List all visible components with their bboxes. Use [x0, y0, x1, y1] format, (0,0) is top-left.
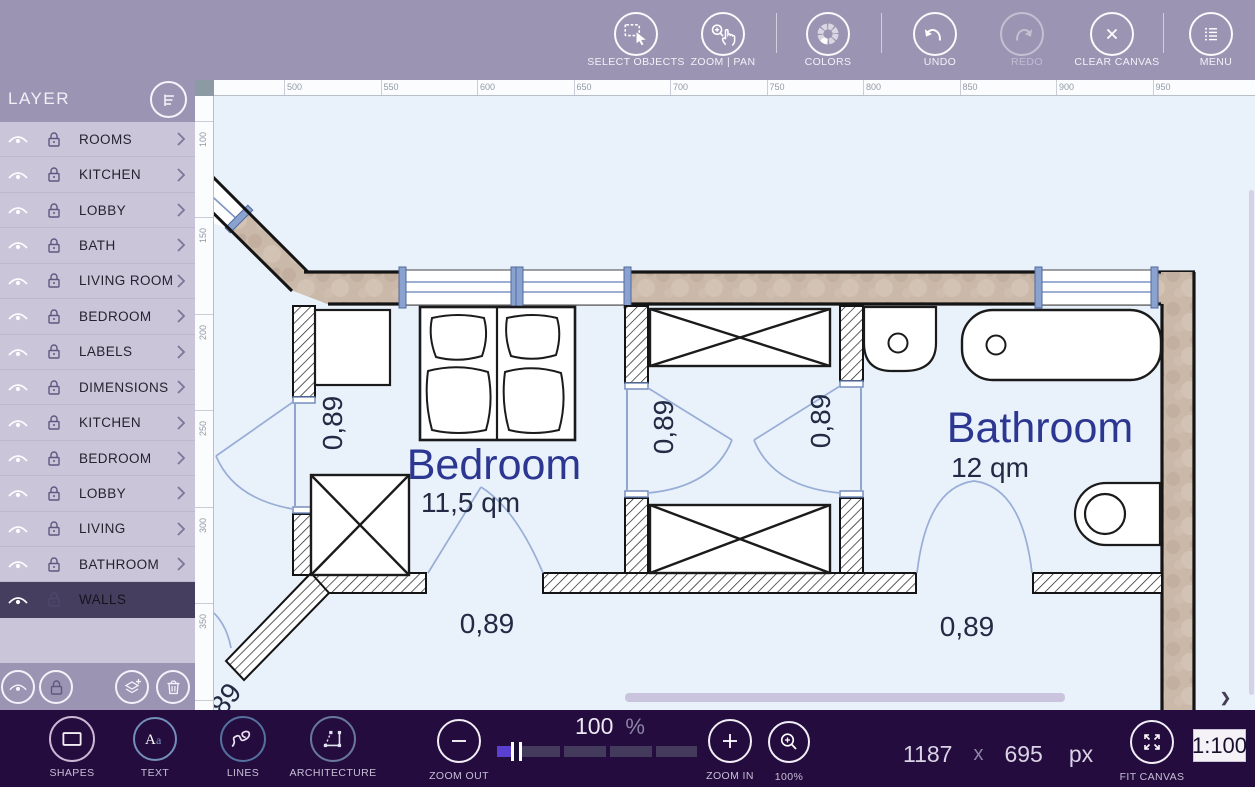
layer-panel-header: LAYER [0, 80, 195, 122]
chevron-right-icon [176, 237, 186, 253]
ruler-tick-label: 300 [198, 503, 208, 533]
undo-icon [921, 20, 949, 48]
layer-row-lobby[interactable]: LOBBY [0, 476, 195, 511]
ruler-tick-label: 650 [577, 82, 592, 92]
architecture-label: ARCHITECTURE [268, 767, 398, 779]
ruler-tick-label: 750 [770, 82, 785, 92]
zoom-reset-label: 100% [724, 771, 854, 783]
ruler-tick-label: 150 [198, 213, 208, 243]
drawing-canvas[interactable]: Bedroom 11,5 qm Bathroom 12 qm 0,89 0,89… [214, 96, 1255, 710]
vertical-ruler: 100150200250300350400 [195, 96, 214, 710]
layer-row-labels[interactable]: LABELS [0, 335, 195, 370]
add-layer-button[interactable] [115, 670, 149, 704]
layer-row-label: KITCHEN [79, 167, 141, 182]
layer-row-label: DIMENSIONS [79, 380, 169, 395]
ruler-tick-label: 700 [673, 82, 688, 92]
ruler-tick-label: 950 [1156, 82, 1171, 92]
redo-icon [1008, 20, 1036, 48]
horizontal-ruler: 500550600650700750800850900950 [214, 80, 1255, 96]
zoom-out-label: ZOOM OUT [394, 770, 524, 782]
ruler-tick [863, 80, 864, 96]
cabinet [315, 310, 390, 385]
layer-row-label: BEDROOM [79, 451, 152, 466]
close-icon [1099, 21, 1125, 47]
bathtub [962, 310, 1161, 380]
top-toolbar: SELECT OBJECTS ZOOM | PAN COLORS [0, 0, 1255, 80]
vertical-scrollbar-thumb[interactable] [1249, 190, 1254, 695]
ruler-tick-label: 550 [384, 82, 399, 92]
shapes-button[interactable] [49, 716, 95, 762]
chevron-right-icon [176, 415, 186, 431]
ruler-tick [670, 80, 671, 96]
eye-icon [6, 487, 30, 499]
layer-row-label: ROOMS [79, 132, 132, 147]
lock-icon [46, 556, 62, 573]
layer-row-label: BATH [79, 238, 116, 253]
layer-row-label: LOBBY [79, 203, 126, 218]
chevron-right-icon [176, 202, 186, 218]
chevron-right-icon [176, 450, 186, 466]
ruler-tick-label: 800 [866, 82, 881, 92]
menu-label: MENU [1151, 56, 1255, 68]
ruler-tick [477, 80, 478, 96]
eye-icon [6, 346, 30, 358]
chevron-right-icon [176, 556, 186, 572]
toolbar-separator [1163, 13, 1164, 53]
architecture-button[interactable] [310, 716, 356, 762]
bedroom-area-label: 11,5 qm [421, 487, 520, 518]
layer-row-living-room[interactable]: LIVING ROOM [0, 264, 195, 299]
eye-icon [6, 452, 30, 464]
lock-icon [46, 237, 62, 254]
dimension-label: 0,89 [805, 394, 836, 449]
double-bed [420, 307, 575, 440]
chevron-right-icon [176, 344, 186, 360]
lock-icon [46, 591, 62, 608]
eye-icon [6, 417, 30, 429]
lock-icon [46, 485, 62, 502]
chevron-right-icon [176, 379, 186, 395]
layer-row-label: BATHROOM [79, 557, 159, 572]
layer-flyout-button[interactable] [150, 81, 187, 118]
zoom-out-button[interactable] [437, 719, 481, 763]
lines-button[interactable] [220, 716, 266, 762]
select-objects-icon [622, 20, 650, 48]
layer-row-label: LIVING [79, 521, 126, 536]
eye-icon [6, 239, 30, 251]
ruler-tick [1056, 80, 1057, 96]
ruler-tick [381, 80, 382, 96]
window [399, 267, 518, 308]
times-sign: x [973, 741, 983, 768]
ruler-tick-label: 100 [198, 117, 208, 147]
eye-icon [6, 275, 30, 287]
toggle-visibility-button[interactable] [1, 670, 35, 704]
text-icon: A a [140, 726, 170, 752]
canvas-height-value[interactable]: 695 [1004, 741, 1042, 768]
bathroom-label: Bathroom [947, 404, 1133, 452]
toolbar-separator [776, 13, 777, 53]
chevron-right-icon [176, 485, 186, 501]
ruler-tick-label: 350 [198, 599, 208, 629]
wardrobe [311, 475, 409, 575]
zoom-pan-icon [709, 20, 737, 48]
ruler-tick-label: 900 [1059, 82, 1074, 92]
layer-row-living[interactable]: LIVING [0, 512, 195, 547]
layer-row-label: LABELS [79, 344, 132, 359]
chevron-right-icon [176, 521, 186, 537]
clear-canvas-button[interactable] [1090, 12, 1134, 56]
dimension-label: 0,89 [317, 396, 348, 451]
layer-row-bathroom[interactable]: BATHROOM [0, 547, 195, 582]
lock-icon [46, 308, 62, 325]
window [516, 267, 631, 308]
eye-icon [6, 133, 30, 145]
menu-list-icon [1198, 21, 1224, 47]
ruler-tick [1153, 80, 1154, 96]
eye-icon [6, 310, 30, 322]
ruler-tick [767, 80, 768, 96]
eye-icon [6, 558, 30, 570]
wardrobe [650, 309, 830, 366]
layer-row-bedroom[interactable]: BEDROOM [0, 441, 195, 476]
zoom-slider-thumb[interactable] [511, 742, 522, 761]
text-button[interactable]: A a [133, 717, 177, 761]
layer-panel-title: LAYER [8, 89, 70, 109]
lock-icon [46, 343, 62, 360]
ruler-tick [574, 80, 575, 96]
colors-label: COLORS [763, 56, 893, 68]
wall-tool-icon [319, 725, 347, 753]
horizontal-scrollbar-thumb[interactable] [625, 693, 1065, 702]
ruler-tick-label: 250 [198, 406, 208, 436]
zoom-pan-button[interactable] [701, 12, 745, 56]
layer-row-label: KITCHEN [79, 415, 141, 430]
rectangle-shape-icon [58, 725, 86, 753]
color-wheel-icon [814, 20, 842, 48]
zoom-reset-button[interactable] [768, 721, 810, 763]
eye-icon [6, 204, 30, 216]
toolbar-separator [881, 13, 882, 53]
bedroom-label: Bedroom [407, 441, 581, 489]
chevron-right-icon [176, 167, 186, 183]
canvas-size-unit: px [1069, 741, 1093, 768]
fit-canvas-button[interactable] [1130, 720, 1174, 764]
scale-selector[interactable]: 1:100 [1193, 729, 1246, 762]
canvas-size-display: 1187 x 695 px [903, 741, 1093, 768]
window [1035, 267, 1158, 308]
fit-canvas-icon [1139, 729, 1165, 755]
delete-layer-button[interactable] [156, 670, 190, 704]
menu-button[interactable] [1189, 12, 1233, 56]
layer-list: ROOMS KITCHEN [0, 122, 195, 663]
ruler-tick [960, 80, 961, 96]
ruler-tick-label: 200 [198, 310, 208, 340]
ruler-tick-label: 500 [287, 82, 302, 92]
eye-icon [8, 680, 28, 694]
scroll-right-arrow[interactable]: ❯ [1220, 690, 1231, 706]
scale-value: 1:100 [1192, 733, 1247, 759]
layer-row-label: LIVING ROOM [79, 273, 173, 288]
add-layer-icon [122, 677, 143, 698]
layer-row-label: BEDROOM [79, 309, 152, 324]
lock-icon [48, 678, 65, 697]
ruler-tick-label: 400 [198, 696, 208, 711]
layer-panel: LAYER [0, 80, 195, 710]
layer-row-walls[interactable]: WALLS [0, 582, 195, 617]
layer-row-bedroom[interactable]: BEDROOM [0, 299, 195, 334]
fit-canvas-label: FIT CANVAS [1087, 771, 1217, 783]
colors-button[interactable] [806, 12, 850, 56]
svg-text:A: A [145, 732, 156, 748]
lock-icon [46, 379, 62, 396]
lock-icon [46, 166, 62, 183]
ruler-tick-label: 850 [963, 82, 978, 92]
redo-button[interactable] [1000, 12, 1044, 56]
select-objects-button[interactable] [614, 12, 658, 56]
layer-row-dimensions[interactable]: DIMENSIONS [0, 370, 195, 405]
chevron-right-icon [176, 131, 186, 147]
toggle-lock-button[interactable] [39, 670, 73, 704]
wardrobe [650, 505, 830, 573]
ruler-tick [284, 80, 285, 96]
trash-icon [164, 677, 183, 697]
lock-icon [46, 414, 62, 431]
zoom-in-button[interactable] [708, 719, 752, 763]
curve-line-icon [229, 725, 257, 753]
plus-icon [717, 728, 743, 754]
undo-button[interactable] [913, 12, 957, 56]
layer-row-label: WALLS [79, 592, 126, 607]
layer-row-rooms[interactable]: ROOMS [0, 122, 195, 157]
layer-row-kitchen[interactable]: KITCHEN [0, 157, 195, 192]
dimension-label: 0,89 [214, 677, 248, 710]
layer-row-bath[interactable]: BATH [0, 228, 195, 263]
floorplan-drawing: Bedroom 11,5 qm Bathroom 12 qm 0,89 0,89… [214, 96, 1255, 710]
bathroom-area-label: 12 qm [951, 452, 1029, 483]
minus-icon [446, 728, 472, 754]
canvas-width-value[interactable]: 1187 [903, 741, 952, 768]
svg-text:a: a [156, 733, 162, 747]
layer-row-kitchen[interactable]: KITCHEN [0, 405, 195, 440]
floorplan-app: SELECT OBJECTS ZOOM | PAN COLORS [0, 0, 1255, 787]
sink [864, 307, 936, 371]
magnifier-plus-icon [776, 729, 802, 755]
dimension-label: 0,89 [940, 611, 995, 642]
eye-icon [6, 381, 30, 393]
lock-icon [46, 450, 62, 467]
layer-panel-footer [0, 663, 195, 710]
ruler-tick-label: 600 [480, 82, 495, 92]
toilet [1075, 483, 1160, 545]
layer-row-lobby[interactable]: LOBBY [0, 193, 195, 228]
zoom-percentage: 100% [575, 713, 645, 740]
layer-row-label: LOBBY [79, 486, 126, 501]
lock-icon [46, 272, 62, 289]
layer-list-icon [158, 89, 180, 111]
eye-icon [6, 169, 30, 181]
eye-icon [6, 594, 30, 606]
chevron-right-icon [176, 273, 186, 289]
chevron-right-icon [176, 308, 186, 324]
lock-icon [46, 202, 62, 219]
lock-icon [46, 520, 62, 537]
eye-icon [6, 523, 30, 535]
lock-icon [46, 131, 62, 148]
bottom-toolbar: SHAPES A a TEXT LINES ARCHITEC [0, 710, 1255, 787]
dimension-label: 0,89 [648, 400, 679, 455]
dimension-label: 0,89 [460, 608, 515, 639]
ruler-corner [195, 80, 214, 96]
